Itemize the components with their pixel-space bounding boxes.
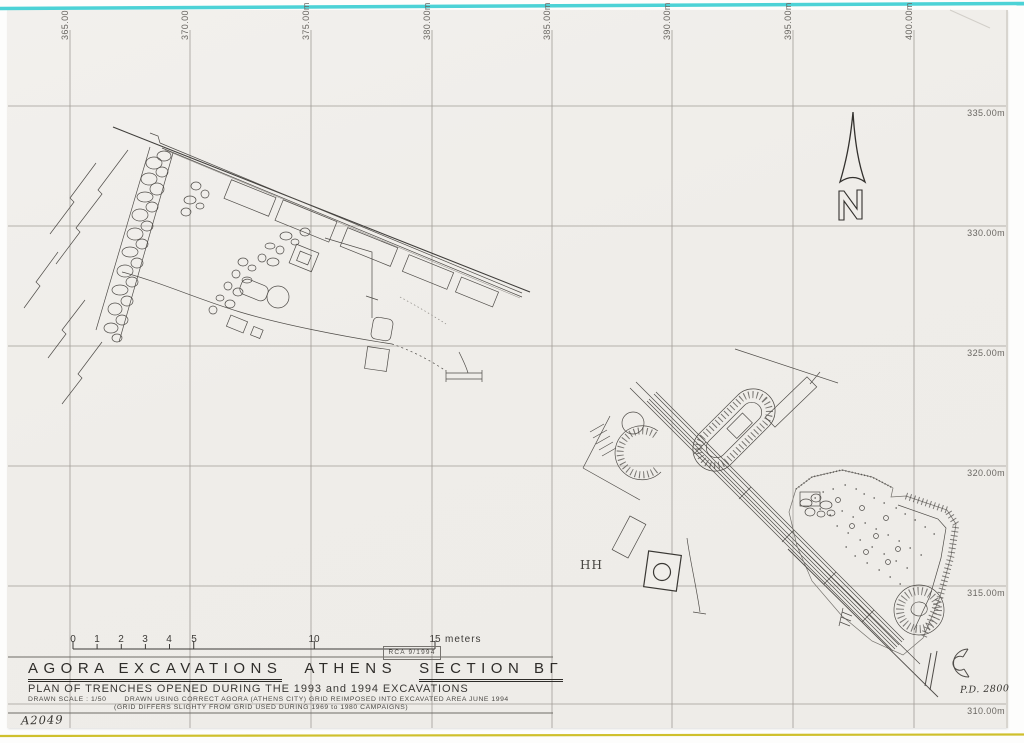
inventory-number: A2049: [21, 712, 64, 727]
scale-tick-label: 4: [161, 634, 177, 645]
scale-tick-label: 0: [65, 634, 81, 645]
hatched-arc-wall: [615, 426, 661, 480]
area-label-hh: HH: [580, 558, 603, 572]
scale-tick-label: 10: [306, 634, 322, 645]
note-grid: DRAWN USING CORRECT AGORA (ATHENS CITY) …: [124, 696, 508, 703]
page-title: AGORA EXCAVATIONSATHENSSECTION BΓ: [28, 660, 563, 677]
note-scale: DRAWN SCALE : 1/50: [28, 696, 106, 703]
trench-complex-northwest: [24, 127, 530, 404]
scale-tick-label: 3: [137, 634, 153, 645]
cyan-top-edge-line: [0, 4, 1024, 9]
title-part-athens: ATHENS: [304, 660, 397, 677]
trench-complex-southeast: [583, 349, 969, 697]
rubble-stones: [104, 151, 171, 342]
hatched-pit: [894, 585, 944, 635]
scale-tick-label: 2: [113, 634, 129, 645]
title-part-agora-excavations: AGORA EXCAVATIONS: [28, 660, 282, 682]
scale-tick-label: 15: [427, 634, 443, 645]
sheet-fold-mark: [950, 10, 990, 28]
plate-number: P.D. 2800: [960, 683, 1010, 696]
north-arrow-icon: [839, 112, 865, 220]
note-grid-difference: (GRID DIFFERS SLIGHTY FROM GRID USED DUR…: [114, 704, 408, 711]
grid-x-label: 395.00m: [783, 0, 793, 40]
interior-rubble: [181, 182, 310, 314]
grid-x-label: 365.00: [60, 0, 70, 40]
plan-subtitle: PLAN OF TRENCHES OPENED DURING THE 1993 …: [28, 683, 469, 695]
grid-y-label: 315.00m: [941, 588, 1005, 598]
scanned-plan-sheet: 365.00 370.00 375.00m 380.00m 385.00m 39…: [0, 0, 1024, 743]
grid-x-label: 370.00: [180, 0, 190, 40]
scale-unit-label: meters: [445, 634, 482, 645]
grid-x-label: 380.00m: [422, 0, 432, 40]
hatched-loop-wall: [684, 380, 784, 480]
scale-tick-label: 5: [186, 634, 202, 645]
yellow-bottom-edge-line: [0, 735, 1024, 737]
drawing-notes: DRAWN SCALE : 1/50DRAWN USING CORRECT AG…: [28, 696, 509, 703]
grid-x-label: 385.00m: [542, 0, 552, 40]
grid-x-label: 375.00m: [301, 0, 311, 40]
scale-tick-label: 1: [89, 634, 105, 645]
grid-y-label: 320.00m: [941, 468, 1005, 478]
grid-y-label: 325.00m: [941, 348, 1005, 358]
grid-x-label: 390.00m: [662, 0, 672, 40]
title-part-section: SECTION BΓ: [419, 660, 563, 682]
grid-y-label: 330.00m: [941, 228, 1005, 238]
plan-linework: [0, 0, 1024, 743]
square-circle-marker: [644, 551, 682, 591]
grid-y-label: 310.00m: [941, 706, 1005, 716]
grid-y-label: 335.00m: [941, 108, 1005, 118]
enclosure-stones: [800, 492, 835, 517]
grid-lines: [8, 30, 1006, 728]
grid-x-label: 400.00m: [904, 0, 914, 40]
credit-stamp: RCA 9/1994: [383, 646, 441, 660]
